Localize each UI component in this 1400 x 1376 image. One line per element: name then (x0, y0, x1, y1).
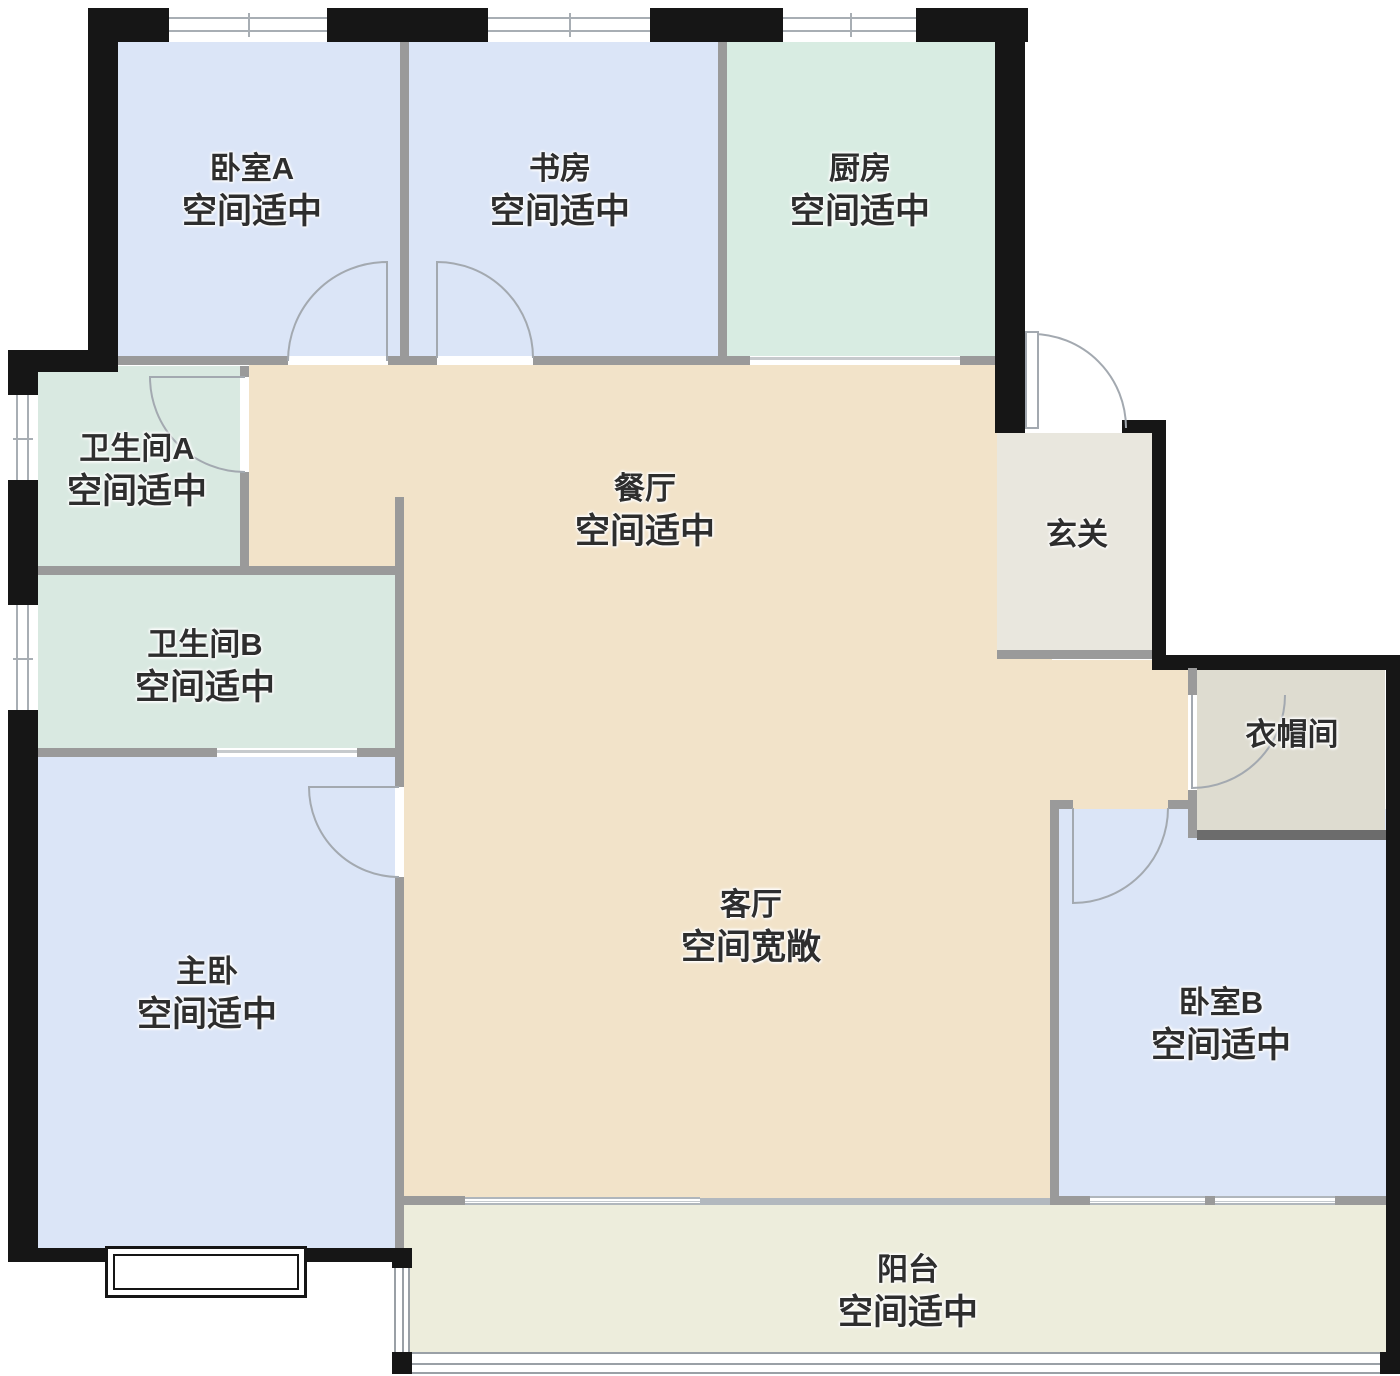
room-name: 厨房 (790, 149, 930, 189)
wall-bathroom-a-bottom (38, 566, 249, 575)
wall-bathroom-a-right-b (240, 472, 249, 575)
window-bathroom-a (8, 395, 38, 480)
wall-study-bottom-r (533, 356, 718, 365)
room-name: 玄关 (1046, 515, 1108, 555)
wall-bedroom-a-left (88, 8, 118, 370)
wall-study-bottom-l (409, 356, 437, 365)
room-label-bathroom-b: 卫生间B 空间适中 (135, 625, 275, 711)
room-status: 空间适中 (1151, 1023, 1291, 1069)
kitchen-sliding-door (750, 357, 960, 360)
room-name: 卧室B (1151, 983, 1291, 1023)
room-label-bedroom-a: 卧室A 空间适中 (182, 149, 322, 235)
wall-bedroom-b-top-l (1050, 800, 1073, 809)
wall-cloakroom-left-t (1188, 668, 1197, 695)
window-balcony-bottom (412, 1352, 1380, 1374)
room-name: 书房 (490, 149, 630, 189)
wall-master-east-lower (395, 877, 404, 1248)
wall-balcony-corner-bl (392, 1352, 412, 1374)
wall-foyer-bottom (997, 650, 1152, 659)
room-status: 空间适中 (137, 992, 277, 1038)
room-status: 空间适中 (67, 469, 207, 515)
wall-bedroom-b-bottom-l (1050, 1196, 1090, 1205)
room-name: 阳台 (838, 1250, 978, 1290)
window-bedroom-a (169, 8, 327, 42)
wall-bathroom-b-bottom-r (357, 748, 404, 757)
room-label-master: 主卧 空间适中 (137, 952, 277, 1038)
wall-divider-study-kitchen (718, 42, 727, 365)
wall-balcony-corner-tl (392, 1248, 412, 1268)
wall-living-balcony-l (404, 1196, 465, 1205)
room-label-foyer: 玄关 (1046, 515, 1108, 555)
wall-bathroom-a-right-t (240, 366, 249, 377)
window-bedroom-b-balcony-1 (1090, 1196, 1205, 1205)
wall-right-lower (1386, 655, 1400, 1374)
wall-bedroom-b-bottom-m (1205, 1196, 1215, 1205)
room-name: 衣帽间 (1246, 715, 1339, 755)
floor-plan: 卧室A 空间适中 书房 空间适中 厨房 空间适中 卫生间A 空间适中 卫生间B … (0, 0, 1400, 1376)
door-entry-leaf (1026, 332, 1038, 428)
room-name: 卫生间A (67, 429, 207, 469)
room-status: 空间宽敞 (681, 925, 821, 971)
wall-divider-beda-study (400, 42, 409, 365)
window-study (488, 8, 650, 42)
room-name: 卧室A (182, 149, 322, 189)
wall-bathroom-b-bottom-l (38, 748, 217, 757)
wall-bedroom-a-bottom-l (118, 356, 288, 365)
wall-kitchen-right (995, 8, 1025, 433)
wall-kitchen-bottom-l (727, 356, 750, 365)
room-status: 空间适中 (575, 509, 715, 555)
room-label-study: 书房 空间适中 (490, 149, 630, 235)
wall-cloakroom-bottom (1197, 830, 1386, 840)
wall-bedroom-b-bottom-r (1335, 1196, 1386, 1205)
window-kitchen (783, 8, 916, 42)
wall-bathroom-b-top (249, 566, 404, 575)
wall-master-bottom-left (8, 1248, 108, 1262)
window-living-balcony (465, 1197, 700, 1205)
wall-living-balcony-r (700, 1198, 1050, 1205)
room-status: 空间适中 (135, 665, 275, 711)
room-name: 餐厅 (575, 469, 715, 509)
wall-bedroom-b-left (1050, 809, 1059, 1205)
room-label-cloakroom: 衣帽间 (1246, 715, 1339, 755)
bathroom-b-sliding-door (217, 750, 357, 753)
wall-balcony-corner-br (1380, 1352, 1400, 1374)
window-balcony-left (394, 1268, 410, 1352)
room-label-living: 客厅 空间宽敞 (681, 885, 821, 971)
room-status: 空间适中 (790, 189, 930, 235)
window-bathroom-b (8, 605, 38, 710)
wall-left (8, 350, 38, 1262)
room-label-dining: 餐厅 空间适中 (575, 469, 715, 555)
room-name: 主卧 (137, 952, 277, 992)
room-status: 空间适中 (838, 1290, 978, 1336)
wall-kitchen-bottom-r (960, 356, 995, 365)
wall-cloakroom-left-b (1188, 790, 1197, 838)
room-name: 客厅 (681, 885, 821, 925)
room-label-kitchen: 厨房 空间适中 (790, 149, 930, 235)
wall-right-upper (1152, 420, 1166, 670)
room-status: 空间适中 (490, 189, 630, 235)
room-name: 卫生间B (135, 625, 275, 665)
wall-bedroom-b-top-r (1168, 800, 1188, 809)
room-status: 空间适中 (182, 189, 322, 235)
room-label-balcony: 阳台 空间适中 (838, 1250, 978, 1336)
bay-window-master (105, 1246, 307, 1298)
door-entry (1032, 334, 1126, 428)
wall-master-bottom-right (305, 1248, 405, 1262)
wall-corridor-stub (395, 497, 404, 787)
window-bedroom-b-balcony-2 (1215, 1196, 1335, 1205)
room-label-bathroom-a: 卫生间A 空间适中 (67, 429, 207, 515)
room-label-bedroom-b: 卧室B 空间适中 (1151, 983, 1291, 1069)
